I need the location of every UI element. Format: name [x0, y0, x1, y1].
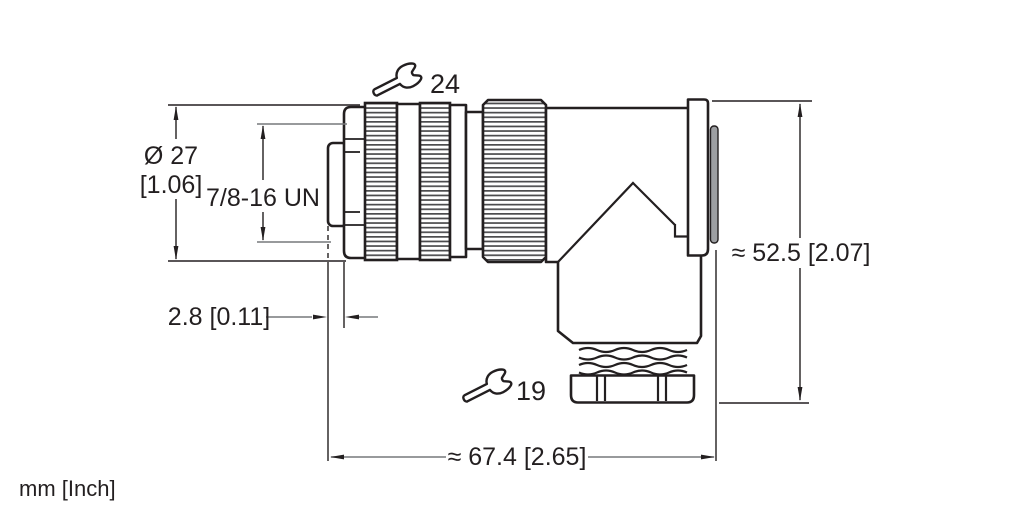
- right-angle-body: [546, 108, 701, 343]
- dim-thread: 7/8-16 UN: [206, 124, 347, 242]
- dim-height: ≈ 52.5 [2.07]: [712, 101, 870, 403]
- arrowhead-down: [261, 227, 266, 241]
- wrench-19-label: 19: [516, 376, 546, 406]
- coupling-nut-front-collar: [344, 107, 366, 258]
- thread-label: 7/8-16 UN: [206, 184, 320, 212]
- neck: [466, 112, 483, 249]
- diameter-inch-label: [1.06]: [140, 171, 203, 199]
- wrench-size-cable-gland: 19: [459, 367, 546, 410]
- technical-drawing-page: Ø 27 [1.06] 7/8-16 UN 2.8 [0.11]: [0, 0, 1022, 511]
- gland-hex-nut: [571, 376, 694, 403]
- arrowhead-up: [261, 125, 266, 139]
- body-knurl-ring: [483, 100, 546, 262]
- arrowhead-down: [174, 246, 179, 260]
- units-label: mm [Inch]: [19, 476, 116, 501]
- arrowhead-up: [798, 103, 803, 117]
- gland-threads: [579, 348, 687, 375]
- arrowhead-right: [701, 455, 715, 460]
- coupling-nut-smooth-ring: [397, 104, 420, 259]
- diameter-mm-label: Ø 27: [144, 142, 198, 170]
- coupling-nut-knurl-ring-b: [420, 103, 450, 260]
- overall-length-label: ≈ 67.4 [2.65]: [448, 443, 587, 471]
- rear-seal: [711, 126, 719, 243]
- arrowhead-right: [313, 315, 327, 320]
- wrench-icon: [369, 61, 424, 104]
- coupling-nut-rear-collar: [450, 105, 466, 257]
- arrowhead-left: [330, 455, 344, 460]
- wrench-size-coupling-nut: 24: [369, 61, 460, 104]
- connector-dimensional-drawing: Ø 27 [1.06] 7/8-16 UN 2.8 [0.11]: [0, 0, 1022, 511]
- connector-drawing: [328, 100, 718, 403]
- arrowhead-left: [345, 315, 359, 320]
- face-offset-label: 2.8 [0.11]: [168, 303, 270, 331]
- height-label: ≈ 52.5 [2.07]: [732, 239, 871, 267]
- rear-cap: [688, 100, 708, 256]
- wrench-24-label: 24: [430, 69, 460, 99]
- coupling-nut-knurl-ring-a: [365, 103, 397, 260]
- arrowhead-down: [798, 387, 803, 401]
- arrowhead-up: [174, 106, 179, 120]
- wrench-icon: [459, 367, 514, 410]
